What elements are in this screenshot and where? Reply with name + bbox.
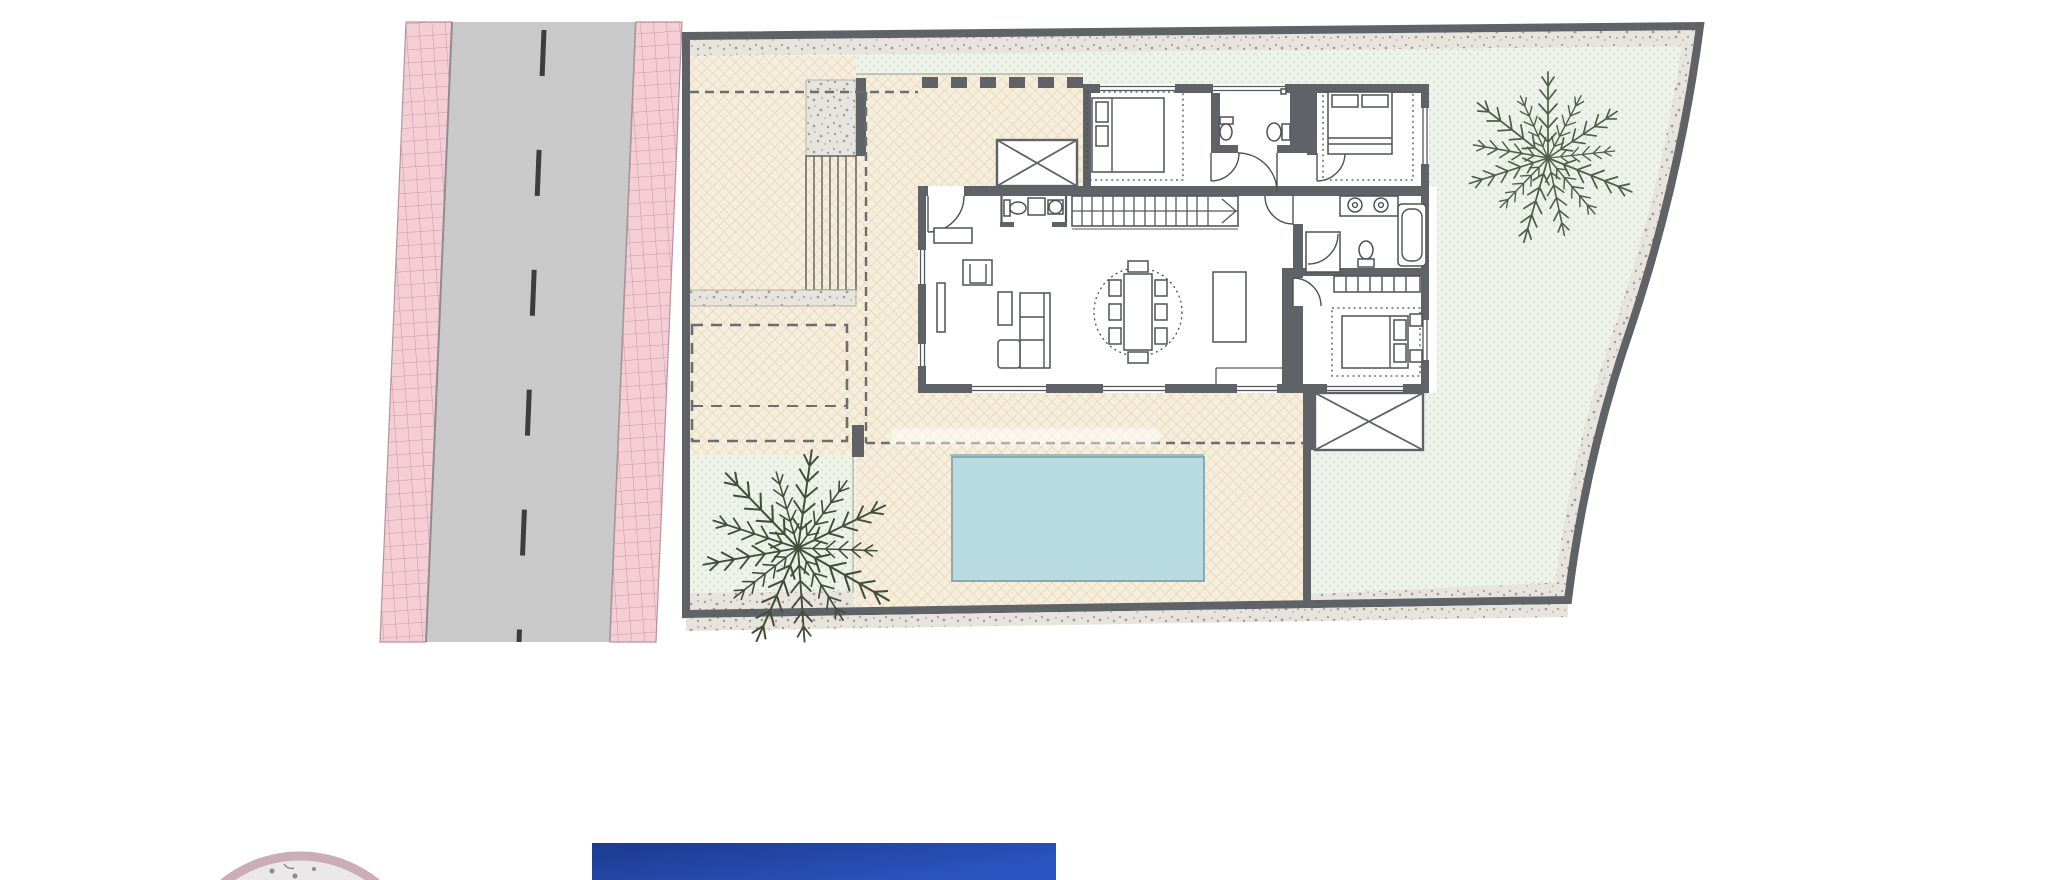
site-plan-page bbox=[0, 0, 2048, 880]
nightstand bbox=[1410, 314, 1422, 326]
brand-banner[interactable] bbox=[592, 843, 1056, 880]
sink-icon bbox=[1220, 124, 1232, 140]
road-asphalt bbox=[426, 22, 636, 642]
dining-table bbox=[1124, 274, 1152, 350]
swimming-pool bbox=[952, 457, 1204, 581]
console-table bbox=[934, 228, 972, 243]
sink-icon bbox=[1374, 198, 1388, 212]
toilet-icon bbox=[1359, 241, 1373, 259]
sink-icon bbox=[1348, 198, 1362, 212]
shower-head-icon bbox=[1281, 89, 1286, 94]
wardrobe bbox=[1334, 276, 1420, 292]
cabinet-icon bbox=[1028, 198, 1045, 215]
side-table bbox=[998, 292, 1012, 325]
toilet-icon bbox=[1267, 123, 1281, 141]
lightwell-left bbox=[997, 140, 1077, 186]
terrace-corner-wall bbox=[852, 425, 864, 457]
armchair bbox=[963, 260, 992, 285]
bedroom-3 bbox=[1332, 308, 1422, 376]
logo-mark bbox=[312, 867, 316, 871]
sink-icon bbox=[1049, 201, 1062, 214]
kitchen-island bbox=[1213, 272, 1246, 342]
logo-badge bbox=[178, 856, 422, 880]
road bbox=[380, 22, 682, 642]
site-plan-canvas bbox=[0, 0, 2048, 880]
watermark bbox=[890, 428, 1160, 445]
logo-mark bbox=[270, 869, 275, 874]
shower bbox=[1306, 232, 1340, 272]
nightstand bbox=[1410, 350, 1422, 362]
window-bench bbox=[937, 283, 945, 332]
toilet-icon bbox=[1004, 200, 1010, 216]
logo-mark bbox=[293, 874, 298, 879]
